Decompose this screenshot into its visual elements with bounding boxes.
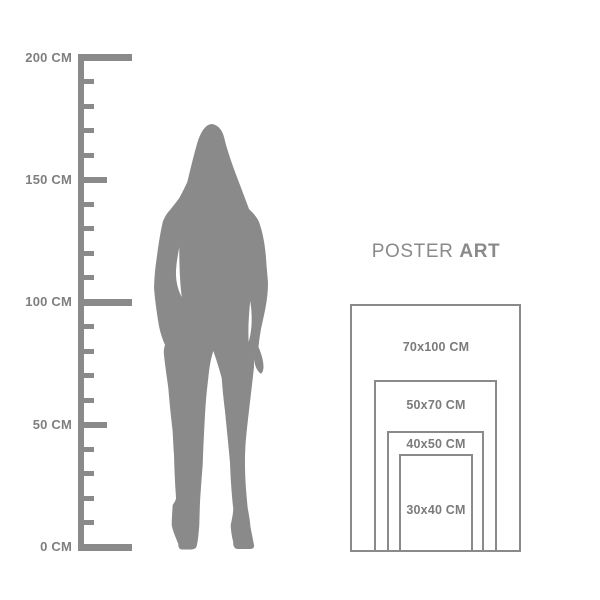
ruler-tick bbox=[78, 275, 94, 280]
ruler-tick bbox=[78, 177, 107, 183]
ruler-tick bbox=[78, 104, 94, 109]
ruler-label: 100 CM bbox=[0, 293, 72, 311]
ruler-tick bbox=[78, 202, 94, 207]
poster-guide-title-regular: POSTER bbox=[372, 241, 454, 262]
ruler-label: 150 CM bbox=[0, 171, 72, 189]
ruler-tick bbox=[78, 226, 94, 231]
size-guide-canvas: 200 CM150 CM100 CM50 CM0 CM POSTER ART 7… bbox=[0, 0, 600, 600]
ruler-label: 200 CM bbox=[0, 49, 72, 67]
ruler-tick bbox=[78, 153, 94, 158]
ruler-label: 50 CM bbox=[0, 416, 72, 434]
poster-size-label-70x100: 70x100 CM bbox=[376, 340, 496, 355]
poster-size-label-30x40: 30x40 CM bbox=[376, 503, 496, 518]
poster-guide-title-bold: ART bbox=[459, 241, 500, 262]
poster-size-label-40x50: 40x50 CM bbox=[376, 437, 496, 452]
ruler-tick bbox=[78, 447, 94, 452]
ruler-tick bbox=[78, 324, 94, 329]
ruler-tick bbox=[78, 128, 94, 133]
ruler-tick bbox=[78, 496, 94, 501]
ruler-tick bbox=[78, 54, 132, 61]
ruler-tick bbox=[78, 471, 94, 476]
ruler-tick bbox=[78, 251, 94, 256]
ruler-tick bbox=[78, 299, 132, 306]
ruler-tick bbox=[78, 79, 94, 84]
ruler-tick bbox=[78, 349, 94, 354]
ruler-tick bbox=[78, 398, 94, 403]
woman-silhouette bbox=[150, 115, 290, 555]
ruler-tick bbox=[78, 544, 132, 551]
ruler-tick bbox=[78, 373, 94, 378]
poster-size-label-50x70: 50x70 CM bbox=[376, 398, 496, 413]
ruler-tick bbox=[78, 422, 107, 428]
poster-guide-title: POSTER ART bbox=[336, 241, 536, 263]
ruler-label: 0 CM bbox=[0, 538, 72, 556]
ruler-tick bbox=[78, 520, 94, 525]
